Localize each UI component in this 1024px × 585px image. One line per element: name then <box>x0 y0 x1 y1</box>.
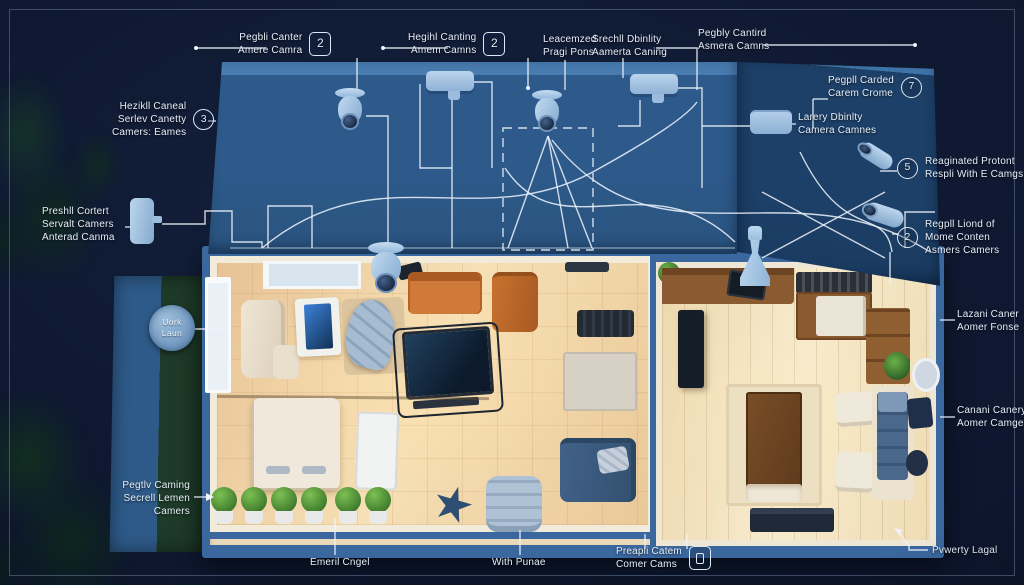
label-line: Reaginated Protont <box>925 155 1023 168</box>
label-line: Aomer Fonse <box>957 321 1019 334</box>
label-line: Amem Camns <box>408 44 476 57</box>
ceiling-vent-grill <box>796 272 872 294</box>
label-line: Aomer Camge <box>957 417 1024 430</box>
tv-screen <box>402 326 495 400</box>
callout-left-1: Hezikll CanealSerlev CanettyCamers: Eame… <box>112 100 214 139</box>
label-line: Comer Cams <box>616 558 682 571</box>
label-line: Pegtlv Caming <box>114 479 190 492</box>
gray-rug <box>563 352 637 411</box>
label-line: Camera Camnes <box>798 124 876 137</box>
label-line: Anterad Canma <box>42 231 115 244</box>
callout-left-2: Preshll CortertServalt CamersAnterad Can… <box>42 205 115 244</box>
floor-bench <box>750 508 834 532</box>
bedroom <box>662 268 930 540</box>
label-line: Servalt Camers <box>42 218 115 231</box>
label-line: Serlev Canetty <box>112 113 186 126</box>
white-cabinet <box>355 411 400 490</box>
label-line: Preshll Cortert <box>42 205 115 218</box>
callout-top-4: Srechll DbinlityAamerta Caning <box>592 33 667 59</box>
sofa-pillow <box>596 446 630 475</box>
window-left-wall <box>205 277 231 393</box>
daybed-pillow <box>878 392 907 412</box>
label-line: Carem Crome <box>828 87 894 100</box>
label-line: Hegihl Canting <box>408 31 476 44</box>
label-line: Pegbli Canter <box>238 31 302 44</box>
side-seat-1 <box>835 391 875 428</box>
label-line: Preapli Catem <box>616 545 682 558</box>
camera-count-badge: 7 <box>901 77 922 98</box>
callout-right-2: Larery DbinltyCamera Camnes <box>798 111 876 137</box>
box-camera-2 <box>630 74 678 103</box>
lawn-badge: Uork Laun <box>149 305 195 351</box>
starfish-decor <box>429 481 476 528</box>
label-line: Secrell Lemen <box>114 492 190 505</box>
tablet-screen <box>304 303 333 349</box>
camera-glyph-icon <box>689 546 711 570</box>
label-line: Asmera Camns <box>698 40 769 53</box>
label-line: Respli With E Camgs <box>925 168 1023 181</box>
label-line: Hezikll Caneal <box>112 100 186 113</box>
bed-handle-2 <box>302 466 326 474</box>
callout-bottom-3: Preapli CatemComer Cams <box>616 545 711 571</box>
label-line: Lazani Caner <box>957 308 1019 321</box>
label-line: Aamerta Caning <box>592 46 667 59</box>
home-security-floorplan-illustration: Pegbli CanterAmere Camra 2 Hegihl Cantin… <box>0 0 1024 585</box>
label-line: Pegpll Carded <box>828 74 894 87</box>
callout-top-3: LeacemzedPragi Pons <box>543 33 597 59</box>
callout-right-5: Lazani CanerAomer Fonse <box>957 308 1019 334</box>
media-console <box>577 310 634 337</box>
nightstand-dark-1 <box>906 397 933 429</box>
wall-mirror <box>912 358 940 392</box>
label-line: Pegbly Cantird <box>698 27 769 40</box>
wall-unit-camera <box>750 110 792 134</box>
outdoor-wall-camera <box>130 198 154 244</box>
bed-foot-bench <box>746 484 802 502</box>
tufted-armchair <box>486 476 542 532</box>
living-room <box>217 263 648 525</box>
callout-top-1: Pegbli CanterAmere Camra 2 <box>238 31 331 57</box>
potted-plant-row <box>211 487 401 527</box>
camera-count-badge: 2 <box>897 227 918 248</box>
label-line: Regpll Liond of <box>925 218 999 231</box>
bed-wood-panel <box>746 392 802 492</box>
label-line: Leacemzed <box>543 33 597 46</box>
label-line: Camers: Eames <box>112 126 186 139</box>
pedestal-camera <box>740 226 770 286</box>
nightstand-dark-2 <box>906 450 928 476</box>
camera-count-badge: 3 <box>193 109 214 130</box>
bed-handle-1 <box>266 466 290 474</box>
dome-camera-1 <box>335 88 365 130</box>
callout-right-6: Canani CaneryAomer Camge <box>957 404 1024 430</box>
callout-top-2: Hegihl CantingAmem Camns 2 <box>408 31 505 57</box>
label-line: With Punae <box>492 556 546 569</box>
callout-bottom-2: With Punae <box>492 556 546 569</box>
camera-count-badge: 5 <box>897 158 918 179</box>
box-camera-1 <box>426 71 474 100</box>
label-line: Uork <box>162 317 182 328</box>
label-line: Amere Camra <box>238 44 302 57</box>
orange-armchair <box>492 272 538 332</box>
camera-count-badge: 2 <box>309 32 331 56</box>
label-line: Laun <box>162 328 183 339</box>
label-line: Pragi Pons <box>543 46 597 59</box>
callout-bottom-left: Pegtlv CamingSecrell LemenCamers <box>114 479 190 518</box>
white-bed <box>252 398 340 490</box>
dome-camera-2 <box>532 90 562 132</box>
label-line: Canani Canery <box>957 404 1024 417</box>
side-seat-2 <box>835 451 875 493</box>
callout-bottom-1: Emeril Cngel <box>310 556 370 569</box>
white-appliance <box>816 296 866 336</box>
label-line: Camers <box>114 505 190 518</box>
cabinet-plant <box>884 352 910 380</box>
ceiling-pipe-fixture <box>565 262 609 272</box>
label-line: Mome Conten <box>925 231 999 244</box>
label-line: Emeril Cngel <box>310 556 370 569</box>
white-ottoman <box>273 345 299 379</box>
callout-right-3: 5 Reaginated ProtontRespli With E Camgs <box>897 155 1023 181</box>
callout-right-1: Pegpll CardedCarem Crome 7 <box>828 74 922 100</box>
callout-top-5: Pegbly CantirdAsmera Camns <box>698 27 769 53</box>
orange-sofa <box>408 272 482 314</box>
label-line: Pvwerty Lagal <box>932 544 997 557</box>
callout-bottom-right: Pvwerty Lagal <box>932 544 997 557</box>
room-dome-camera <box>368 242 404 293</box>
label-line: Larery Dbinlty <box>798 111 876 124</box>
callout-right-4: 2 Regpll Liond ofMome ContenAsmers Camer… <box>897 218 999 257</box>
label-line: Srechll Dbinlity <box>592 33 667 46</box>
skylight-window <box>263 261 361 289</box>
label-line: Asmers Camers <box>925 244 999 257</box>
camera-count-badge: 2 <box>483 32 505 56</box>
wall-tv <box>678 310 704 388</box>
